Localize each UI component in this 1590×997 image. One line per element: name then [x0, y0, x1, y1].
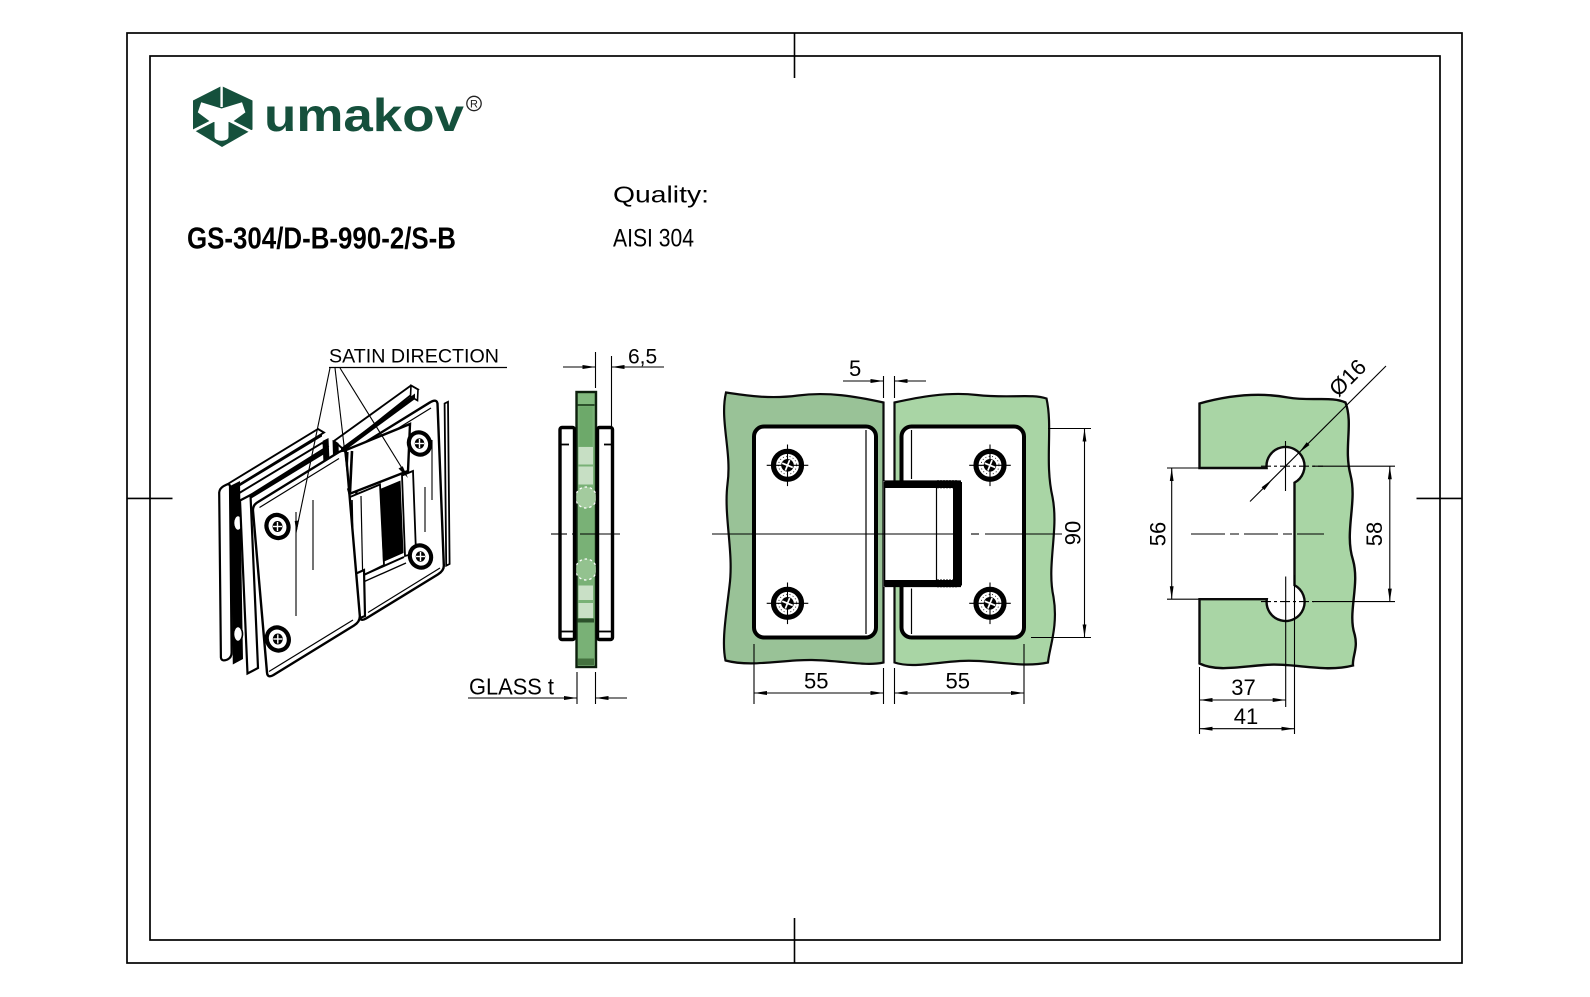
svg-text:R: R — [470, 99, 478, 111]
svg-text:41: 41 — [1234, 704, 1258, 729]
svg-text:90: 90 — [1061, 521, 1086, 545]
svg-text:55: 55 — [946, 669, 970, 694]
svg-text:37: 37 — [1231, 675, 1255, 700]
svg-text:SATIN DIRECTION: SATIN DIRECTION — [329, 346, 499, 368]
svg-text:GS-304/D-B-990-2/S-B: GS-304/D-B-990-2/S-B — [187, 221, 456, 256]
svg-text:Quality:: Quality: — [613, 182, 709, 208]
svg-text:umakov: umakov — [264, 89, 464, 141]
svg-text:5: 5 — [849, 356, 861, 381]
svg-text:GLASS t: GLASS t — [469, 674, 555, 700]
svg-text:56: 56 — [1146, 522, 1171, 546]
svg-text:58: 58 — [1362, 522, 1387, 546]
svg-text:6,5: 6,5 — [628, 346, 657, 369]
svg-text:55: 55 — [804, 669, 828, 694]
svg-text:AISI 304: AISI 304 — [613, 225, 694, 253]
